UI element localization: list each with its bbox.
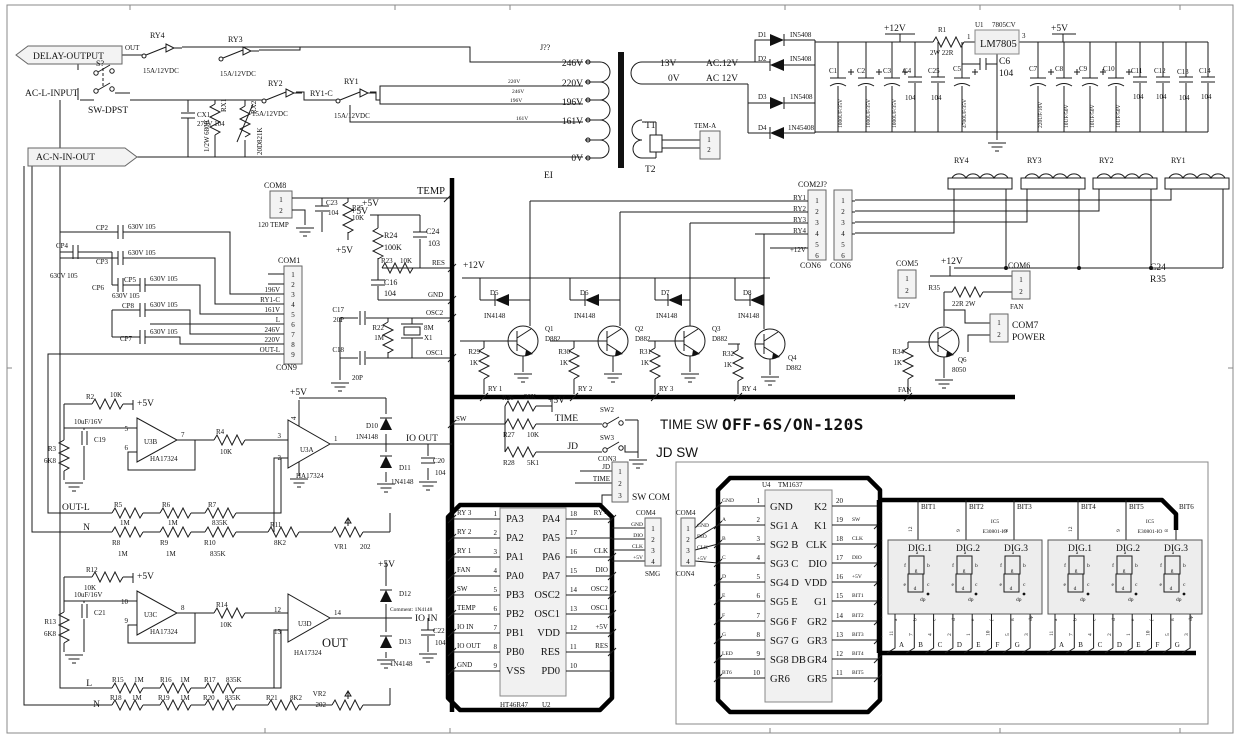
- u4-r6: G1: [814, 597, 827, 608]
- lbl-5v-r24: +5V: [351, 207, 368, 217]
- cap-cp8: [140, 303, 145, 317]
- stub-seg-g-m1: g: [1009, 618, 1015, 621]
- lbl-5v-r12: +5V: [137, 572, 154, 582]
- lbl-q2: Q2: [635, 325, 644, 333]
- lbl-5v-r26: +5V: [548, 396, 565, 406]
- lbl-con3-jd: JD: [602, 463, 610, 471]
- lbl-sw3: SW3: [600, 434, 615, 442]
- u4-l1-sig: GND: [722, 498, 734, 504]
- lbl-r28: R28: [503, 459, 515, 467]
- stub-num-dp-m2: 3: [1184, 633, 1190, 636]
- lbl-tap-220: 220V: [562, 79, 583, 89]
- relay-coil-ry3: [1021, 174, 1085, 189]
- lbl-cp5-val: 630V 105: [150, 275, 178, 283]
- seg-label-b-1: b: [927, 563, 930, 569]
- gnd-r13: [65, 655, 83, 663]
- u4-l3: SG2 B: [770, 540, 798, 551]
- lbl-temp-net: TEMP: [417, 186, 445, 197]
- schematic-drawing: DELAY-OUTPUT OUT AC-N-IN-OUT AC-L-INPUT …: [0, 0, 1240, 739]
- seg-label-b-3: b: [1023, 563, 1026, 569]
- cap-cp4: [73, 245, 78, 259]
- stub-seg-b-m1: b: [912, 618, 918, 621]
- com4b-2: 2: [686, 536, 690, 544]
- u2-l3-sig: RY 1: [457, 547, 472, 555]
- lbl-time-net: TIME: [555, 414, 578, 424]
- lbl-u1-pin3: 3: [1022, 32, 1026, 40]
- lbl-c2-val: 1000UF/35V: [866, 99, 872, 128]
- lbl-c8: C8: [1055, 65, 1064, 73]
- u4-r4-sig: DIO: [852, 555, 862, 561]
- diode-d2: [770, 59, 784, 71]
- lbl-osc2-net: OSC2: [426, 309, 444, 317]
- com2jb-6: 6: [841, 252, 845, 260]
- u4-l4-n: 4: [757, 554, 761, 562]
- com1-8: 8: [291, 341, 295, 349]
- resistor-r27: [505, 419, 536, 429]
- com8-1: 1: [279, 196, 283, 204]
- lbl-c10: C10: [1103, 65, 1115, 73]
- com4a-5v: +5V: [633, 555, 643, 561]
- com4a-4: 4: [651, 558, 655, 566]
- lbl-c12-val: 104: [1156, 93, 1167, 101]
- lbl-c23-val: 104: [328, 209, 339, 217]
- thermal-fuse: [650, 135, 662, 152]
- u2-r2-n: 17: [570, 529, 578, 537]
- u2-l2: PA2: [506, 533, 524, 544]
- lbl-ac12: AC:12V: [706, 59, 738, 69]
- com2ja-4: 4: [815, 230, 819, 238]
- gnd-osc: [331, 383, 349, 391]
- switch-s-pole2: [94, 83, 114, 93]
- lbl-d13-val: 1N4148: [390, 660, 413, 668]
- com4a-clk: CLK: [632, 544, 643, 550]
- lbl-ic5-a: IC5: [991, 519, 1000, 525]
- stub-seg-c-m1: c: [932, 618, 938, 621]
- stub-num-c-m2: 4: [1088, 633, 1094, 636]
- lbl-d3-val: 1N5408: [790, 93, 813, 101]
- lbl-d3: D3: [758, 93, 767, 101]
- u2-r7-sig: +5V: [595, 623, 608, 631]
- diode-d1: [770, 34, 784, 46]
- gnd-q4: [761, 377, 779, 385]
- lbl-r15-val: 1M: [134, 676, 145, 684]
- cap-c11: [1133, 77, 1147, 82]
- stub-seg-dp-m2: dp: [1188, 615, 1194, 621]
- resistor-r14: [214, 608, 245, 618]
- u4-r5: VDD: [804, 578, 827, 589]
- lbl-12v-fan: +12V: [941, 257, 963, 267]
- lbl-r6: R6: [162, 501, 171, 509]
- u4-r10: GR5: [807, 674, 827, 685]
- con3-3: 3: [618, 492, 622, 500]
- u2-l9-n: 9: [494, 662, 498, 670]
- lbl-tap-246: 246V: [562, 59, 583, 69]
- u2-r6-n: 13: [570, 605, 578, 613]
- lbl-r21-val: 8K2: [290, 694, 303, 702]
- gnd-c20: [419, 482, 437, 490]
- seg-label-g-4: g: [1075, 568, 1078, 574]
- u3a-pin2: 2: [278, 454, 282, 462]
- u4-l2-sig: A: [722, 517, 726, 523]
- seg-label-dp-3: dp: [1016, 597, 1022, 603]
- u4-r3-sig: CLK: [852, 536, 863, 542]
- lbl-r2-val: 10K: [110, 391, 122, 399]
- lbl-d10-val: 1N4148: [355, 433, 378, 441]
- relay-contact-ry4: [142, 44, 182, 58]
- lbl-r5-val: 1M: [120, 519, 131, 527]
- cap-cx1: [181, 113, 195, 118]
- lbl-q6-val: 8050: [952, 366, 967, 374]
- lbl-r7-val: 835K: [212, 519, 228, 527]
- lbl-rx2: RX2: [250, 100, 258, 114]
- u2-l5-n: 5: [494, 586, 498, 594]
- resistor-r29: [479, 348, 489, 379]
- u4-l6-sig: E: [722, 593, 726, 599]
- lbl-c10-val: 10UF/50V: [1116, 104, 1122, 128]
- cap-c17: [360, 311, 365, 325]
- lbl-con6b: CON6: [830, 261, 851, 270]
- u2-r2: PA5: [542, 533, 560, 544]
- lbl-u2-part: HT46R47: [500, 701, 529, 709]
- relay-coil-ry4: [948, 174, 1012, 189]
- stub-letter-C-m2: C: [1098, 641, 1103, 649]
- lbl-r26: R26: [502, 394, 514, 402]
- com4a-1: 1: [651, 525, 655, 533]
- lbl-u3c: U3C: [144, 611, 158, 619]
- gnd-r3: [65, 483, 83, 491]
- lbl-ry4: RY4: [150, 31, 165, 40]
- gnd-q3: [681, 374, 699, 382]
- lbl-q4-val: D882: [786, 364, 802, 372]
- lbl-u3d-part: HA17324: [294, 649, 322, 657]
- stub-num-b-m2: 7: [1068, 633, 1074, 636]
- u4-l7: SG6 F: [770, 617, 797, 628]
- u2-l3: PA1: [506, 552, 524, 563]
- lbl-r27: R27: [503, 431, 515, 439]
- lbl-d10: D10: [366, 422, 379, 430]
- u4-l9-sig: LED: [722, 651, 733, 657]
- com1-6: 6: [291, 321, 295, 329]
- cap-c16: [371, 280, 385, 285]
- resistor-r24: [373, 228, 383, 259]
- lbl-ry3: RY3: [228, 35, 243, 44]
- seg-label-b-5: b: [1135, 563, 1138, 569]
- u2-r9: PD0: [541, 666, 560, 677]
- cap-cp3: [118, 251, 123, 265]
- tem-pin2: 2: [707, 146, 711, 154]
- u4-r3: CLK: [806, 540, 827, 551]
- lbl-r2: R2: [86, 393, 95, 401]
- lbl-d7-val: IN4148: [656, 312, 678, 320]
- lbl-io-out-net: IO OUT: [406, 434, 438, 444]
- u2-l7: PB1: [506, 628, 524, 639]
- stub-letter-F-m2: F: [1156, 641, 1160, 649]
- lbl-r26-val: 20K: [524, 393, 536, 401]
- com4b-3: 3: [686, 547, 690, 555]
- lbl-0v: 0V: [668, 74, 680, 84]
- u4-l8: SG7 G: [770, 636, 799, 647]
- com2ja-3: 3: [815, 219, 819, 227]
- u4-r9-n: 12: [836, 650, 844, 658]
- lbl-r35: R35: [928, 284, 940, 292]
- section-com2j: COM2J? 123456 123456 CON6 CON6 RY1 RY2 R…: [530, 180, 855, 270]
- lbl-d13: D13: [399, 638, 412, 646]
- u4-r2-n: 19: [836, 516, 844, 524]
- com4b-1: 1: [686, 525, 690, 533]
- lbl-com7: COM7: [1012, 321, 1039, 331]
- lbl-con3-time: TIME: [593, 475, 610, 483]
- u4-l5: SG4 D: [770, 578, 799, 589]
- pin12-a: 12: [908, 526, 914, 532]
- lbl-d8: D8: [743, 289, 752, 297]
- com6-1: 1: [1019, 276, 1023, 284]
- relay-coil-ry2: [1093, 174, 1157, 189]
- com4b-dio: DIO: [697, 534, 707, 540]
- resistor-r8: [112, 527, 143, 537]
- lbl-r15: R15: [112, 676, 124, 684]
- u2-l6: PB2: [506, 609, 524, 620]
- lbl-n2-net: N: [93, 700, 100, 710]
- lbl-sw-net: SW: [456, 415, 467, 423]
- stub-letter-B-m1: B: [918, 641, 923, 649]
- stub-num-c-m1: 4: [928, 633, 934, 636]
- m1-dig2: DIG.2: [956, 544, 980, 554]
- stub-num-a-m1: 11: [889, 630, 895, 636]
- lbl-r1: R1: [938, 26, 947, 34]
- u4-l1: GND: [770, 502, 793, 513]
- lbl-time-sw-title: TIME SW: [660, 417, 718, 432]
- relay-contact-ry1: [336, 89, 376, 103]
- gnd-q1: [514, 374, 532, 382]
- lbl-r18: R18: [110, 694, 122, 702]
- lbl-coil-ry3: RY3: [1027, 156, 1042, 165]
- seg-label-dp-4: dp: [1080, 597, 1086, 603]
- com1-4: 4: [291, 301, 295, 309]
- com2jb-1: 1: [841, 197, 845, 205]
- section-com4: COM4 1234 GND DIO CLK +5V SMG COM4 1234 …: [612, 506, 718, 578]
- lbl-r9-val: 1M: [166, 550, 177, 558]
- lbl-c25: C25: [928, 67, 940, 75]
- u2-l8-sig: IO OUT: [457, 642, 481, 650]
- display-module-pins: a11Ab7Bc4Cd2De1Ef10Fg5Gdp3a11Ab7Bc4Cd2De…: [887, 614, 1194, 653]
- lbl-c4-val: 104: [905, 94, 916, 102]
- lbl-5v-u3a: +5V: [290, 388, 307, 398]
- stub-num-f-m2: 10: [1146, 630, 1152, 636]
- lbl-c11-val: 104: [1133, 93, 1144, 101]
- lbl-com8: COM8: [264, 181, 286, 190]
- u4-r9: GR4: [807, 655, 828, 666]
- section-rectifier: D1 IN5408 D2 IN5408 D3 1N5408 D4 1N45408: [748, 31, 815, 139]
- lbl-tap-196: 196V: [562, 98, 583, 108]
- lbl-c14: C14: [1199, 67, 1211, 75]
- lbl-r17: R17: [204, 676, 216, 684]
- u4-r6-sig: BIT1: [852, 593, 864, 599]
- lbl-ry2: RY2: [268, 79, 283, 88]
- lbl-u3b: U3B: [144, 438, 158, 446]
- lbl-j: J??: [540, 43, 551, 52]
- lbl-wire-246: 246V: [512, 89, 524, 95]
- m2-dig2: DIG.2: [1116, 544, 1140, 554]
- lbl-jd-net: JD: [567, 442, 578, 452]
- lbl-c2: C2: [857, 67, 866, 75]
- stub-num-g-m2: 5: [1165, 633, 1171, 636]
- lbl-out: OUT: [125, 44, 140, 52]
- lbl-smg: SMG: [645, 570, 660, 578]
- lbl-com4b: COM4: [676, 509, 696, 517]
- lbl-r24-val: 100K: [384, 243, 402, 252]
- u4-r10-sig: BIT5: [852, 670, 864, 676]
- u4-l2-n: 2: [757, 516, 761, 524]
- lbl-r27-val: 10K: [527, 431, 539, 439]
- u4-r8-sig: BIT3: [852, 632, 864, 638]
- sig-246v: 246V: [264, 326, 280, 334]
- lbl-c14-val: 104: [1201, 93, 1212, 101]
- lbl-r19: R19: [158, 694, 170, 702]
- transistor-q3: [675, 326, 705, 356]
- com4b-gnd: GND: [697, 523, 709, 529]
- cap-c19: [82, 431, 87, 445]
- lbl-c22-val: 104: [435, 639, 446, 647]
- u2-r8: RES: [541, 647, 560, 658]
- lbl-com6-fan: FAN: [1010, 303, 1023, 311]
- seg-label-b-2: b: [975, 563, 978, 569]
- u3b-pin5: 5: [125, 425, 129, 433]
- u3a-pin4: 4: [290, 416, 298, 420]
- stub-letter-F-m1: F: [996, 641, 1000, 649]
- u3d-pin13: 13: [274, 628, 282, 636]
- lbl-r13-val: 6K8: [44, 630, 57, 638]
- lbl-time-mode: OFF-6S/ON-120S: [722, 415, 864, 434]
- stub-seg-f-m1: f: [989, 619, 996, 621]
- lbl-5v-r2: +5V: [137, 399, 154, 409]
- lbl-r32-val: 1K: [723, 361, 732, 369]
- pin9-b: 9: [1116, 529, 1122, 532]
- u2-l9: VSS: [506, 666, 525, 677]
- stub-seg-c-m2: c: [1092, 618, 1098, 621]
- u2-r1-sig: RY 4: [594, 509, 609, 517]
- lbl-d1: D1: [758, 31, 767, 39]
- lbl-coil-ry4: RY4: [954, 156, 969, 165]
- pin8-b: 8: [1164, 529, 1170, 532]
- stub-seg-g-m2: g: [1169, 618, 1175, 621]
- resistor-r9: [160, 527, 191, 537]
- u2-r1: PA4: [542, 514, 560, 525]
- lbl-12v-drv: +12V: [463, 261, 485, 271]
- lbl-bit1: BIT1: [921, 503, 936, 511]
- u4-r4: DIO: [808, 559, 827, 570]
- lbl-ry1-rating: 15A/12VDC: [334, 112, 370, 120]
- lbl-x1: X1: [424, 334, 433, 342]
- lbl-c3: C3: [883, 67, 892, 75]
- lbl-con4: CON4: [676, 570, 695, 578]
- resistor-r26: [505, 401, 536, 411]
- lbl-coil-ry2: RY2: [1099, 156, 1114, 165]
- cap-c24b: [413, 232, 427, 237]
- u4-l8-n: 8: [757, 631, 761, 639]
- lbl-c22: C22: [433, 627, 445, 635]
- lbl-r31-val: 1K: [640, 359, 649, 367]
- seg-label-g-3: g: [1011, 568, 1014, 574]
- lbl-rx1: RX1: [220, 98, 228, 112]
- lbl-rx2-val: 20D821K: [256, 127, 264, 155]
- lbl-jd-sw-title: JD SW: [656, 445, 698, 460]
- lbl-r8-val: 1M: [118, 550, 129, 558]
- lbl-c9-val: 10UF/50V: [1090, 104, 1096, 128]
- sig-outl: OUT-L: [260, 346, 280, 354]
- lbl-r3-val: 6K8: [44, 457, 57, 465]
- u2-r8-sig: RES: [595, 642, 608, 650]
- resistor-r34: [903, 348, 913, 379]
- u4-r1-n: 20: [836, 497, 844, 505]
- section-fan-driver: +12V R35 22R 2W Q6 8050 R34 1K FAN COM5 …: [892, 257, 1166, 401]
- resistor-r28: [505, 447, 536, 457]
- pin9-a: 9: [956, 529, 962, 532]
- lbl-con6a: CON6: [800, 261, 821, 270]
- diode-d11: [380, 456, 392, 468]
- lbl-c20: C20: [433, 457, 445, 465]
- u2-l1-n: 1: [494, 510, 498, 518]
- u2-r3-n: 16: [570, 548, 578, 556]
- stub-num-e-m2: 1: [1126, 633, 1132, 636]
- lbl-r11: R11: [270, 521, 282, 529]
- lbl-com4a: COM4: [636, 509, 656, 517]
- lbl-q1-val: D882: [545, 335, 561, 343]
- seg-label-g-2: g: [963, 568, 966, 574]
- com2ja-1: 1: [815, 197, 819, 205]
- lbl-r20-val: 835K: [225, 694, 241, 702]
- resistor-r5: [112, 508, 143, 518]
- seg-label-f-1: f: [904, 562, 906, 569]
- transformer-core: [618, 52, 624, 168]
- lbl-wire-196: 196V: [510, 98, 522, 104]
- lbl-bit3: BIT3: [1017, 503, 1032, 511]
- lbl-r19-val: 1M: [180, 694, 191, 702]
- stub-seg-a-m2: a: [1053, 618, 1059, 621]
- gnd-sw: [629, 460, 647, 468]
- lbl-gnd-net: GND: [428, 291, 443, 299]
- relay-contact-ry3: [219, 47, 259, 61]
- u4-l4: SG3 C: [770, 559, 798, 570]
- stub-seg-dp-m1: dp: [1028, 615, 1034, 621]
- com4a-dio: DIO: [633, 533, 643, 539]
- u2-l4: PA0: [506, 571, 524, 582]
- lbl-r32: R32: [722, 350, 734, 358]
- u2-r6: OSC1: [534, 609, 560, 620]
- secondary-winding: [631, 62, 642, 158]
- com7-1: 1: [997, 319, 1001, 327]
- seg-label-d-5: d: [1122, 586, 1125, 592]
- com4b-clk: CLK: [697, 545, 708, 551]
- lbl-r34: R34: [892, 348, 904, 356]
- com8-2: 2: [279, 207, 283, 215]
- lbl-c21-val: 10uF/16V: [74, 591, 102, 599]
- lbl-r16-val: 1M: [180, 676, 191, 684]
- u4-l7-sig: F: [722, 613, 725, 619]
- u2-l5-sig: SW: [457, 585, 468, 593]
- lbl-com6: COM6: [1008, 261, 1030, 270]
- lbl-delay-output: DELAY-OUTPUT: [33, 52, 104, 62]
- u4-l7-n: 7: [757, 612, 761, 620]
- lbl-q1: Q1: [545, 325, 554, 333]
- com2ja-6: 6: [815, 252, 819, 260]
- com6-2: 2: [1019, 288, 1023, 296]
- lbl-c5: C5: [953, 65, 962, 73]
- u3c-pin8: 8: [181, 604, 185, 612]
- stub-num-dp-m1: 3: [1024, 633, 1030, 636]
- lbl-osc1-net: OSC1: [426, 349, 444, 357]
- cap-cp7: [140, 330, 145, 344]
- u2-r4: PA7: [542, 571, 560, 582]
